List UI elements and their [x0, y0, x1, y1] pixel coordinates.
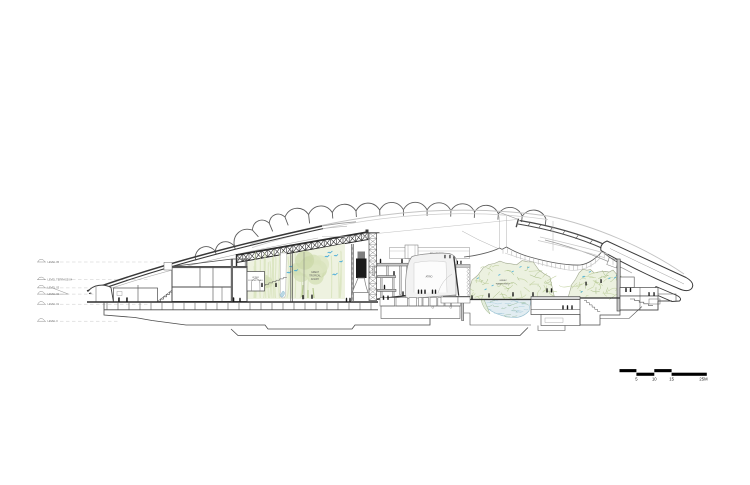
svg-text:CONCERT HALL: CONCERT HALL [248, 279, 264, 282]
svg-text:AVIARY: AVIARY [311, 278, 320, 281]
svg-text:LEVEL 0: LEVEL 0 [48, 319, 59, 323]
svg-text:GREAT: GREAT [499, 279, 507, 282]
svg-text:LEVEL 03: LEVEL 03 [48, 286, 60, 290]
svg-text:ATRIO: ATRIO [426, 276, 433, 279]
svg-text:TROPICAL: TROPICAL [309, 275, 321, 278]
svg-text:LEVEL 01: LEVEL 01 [48, 302, 60, 306]
svg-text:RAINFOREST: RAINFOREST [496, 282, 511, 285]
svg-text:10: 10 [652, 377, 657, 382]
svg-text:UPPER: UPPER [252, 277, 259, 279]
svg-text:15: 15 [669, 377, 674, 382]
svg-text:GREAT: GREAT [311, 271, 319, 274]
svg-text:25M: 25M [699, 377, 708, 382]
svg-text:LEVEL 05: LEVEL 05 [48, 260, 60, 264]
